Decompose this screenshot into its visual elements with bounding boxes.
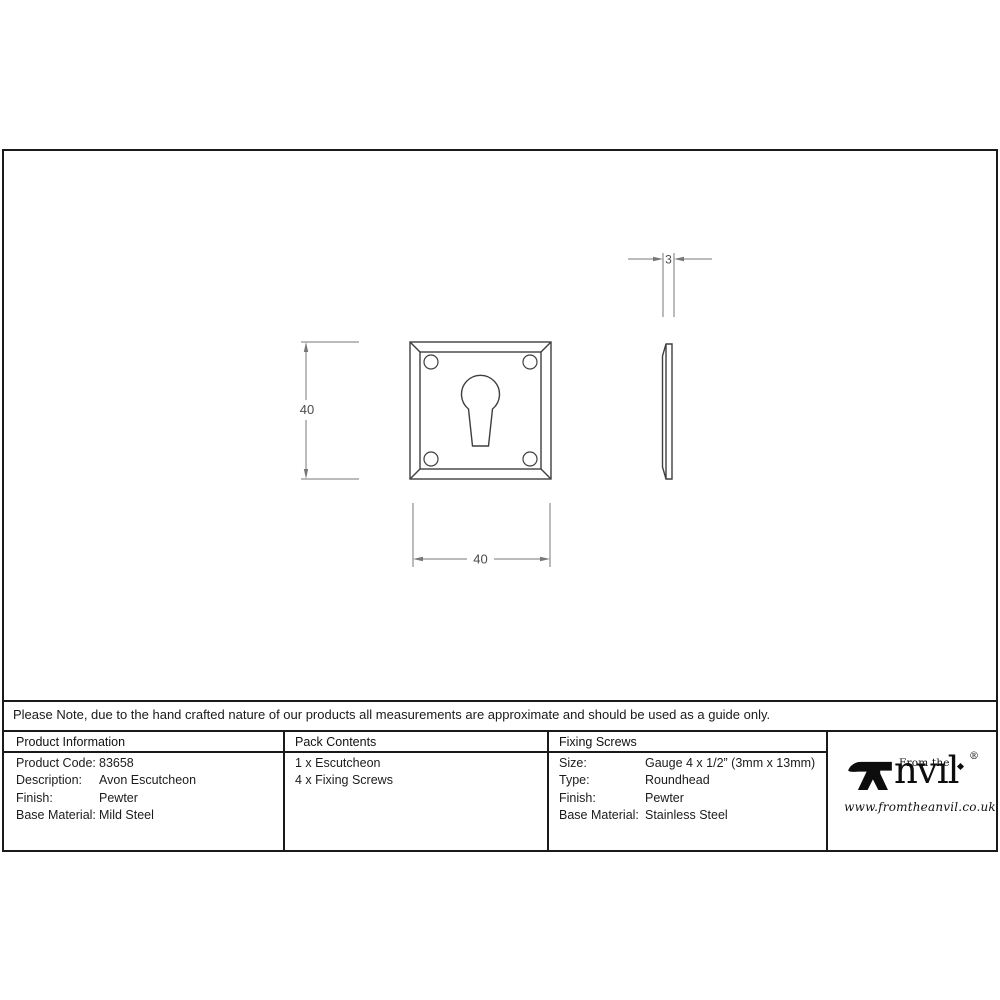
front-outer-edge bbox=[410, 342, 551, 479]
escutcheon-front-view bbox=[410, 342, 551, 479]
column-header-pack-contents: Pack Contents bbox=[295, 735, 376, 749]
arrowhead-up bbox=[304, 342, 308, 352]
screw-hole bbox=[523, 355, 537, 369]
bevel-corner-line bbox=[410, 469, 420, 479]
row-label: Product Code: bbox=[16, 755, 96, 772]
bevel-corner-line bbox=[541, 342, 551, 352]
screw-hole bbox=[424, 355, 438, 369]
from-the-anvil-logo: From the nvıl ® www.fromtheanvil.co.uk bbox=[842, 749, 1000, 819]
drawing-frame: 40 40 3 Please N bbox=[2, 149, 998, 852]
table-row: Size: Gauge 4 x 1/2” (3mm x 13mm) bbox=[559, 755, 639, 772]
row-label: Base Material: bbox=[559, 807, 639, 824]
row-value: 83658 bbox=[99, 755, 134, 772]
front-bevel-edge bbox=[420, 352, 541, 469]
arrowhead-down bbox=[304, 469, 308, 479]
table-row: Base Material: Mild Steel bbox=[16, 807, 96, 824]
row-value: Gauge 4 x 1/2” (3mm x 13mm) bbox=[645, 755, 815, 772]
row-value: Pewter bbox=[99, 790, 138, 807]
table-column-divider bbox=[283, 730, 285, 850]
table-column-divider bbox=[826, 730, 828, 850]
table-row: Finish: Pewter bbox=[559, 790, 639, 807]
row-value: Roundhead bbox=[645, 772, 710, 789]
screw-hole bbox=[424, 452, 438, 466]
brand-wordmark: nvıl bbox=[894, 752, 958, 789]
table-row: Finish: Pewter bbox=[16, 790, 96, 807]
table-row: Description: Avon Escutcheon bbox=[16, 772, 96, 789]
bevel-corner-line bbox=[410, 342, 420, 352]
column-header-fixing-screws: Fixing Screws bbox=[559, 735, 637, 749]
width-dimension-label: 40 bbox=[473, 552, 487, 567]
height-dimension-label: 40 bbox=[300, 402, 314, 417]
row-label: Size: bbox=[559, 755, 587, 772]
brand-website-url: www.fromtheanvil.co.uk bbox=[836, 800, 1000, 814]
arrowhead-right bbox=[540, 557, 550, 561]
table-row: 4 x Fixing Screws bbox=[295, 772, 393, 789]
arrowhead-left bbox=[674, 257, 684, 261]
row-value: Avon Escutcheon bbox=[99, 772, 196, 789]
spec-sheet-page: 40 40 3 Please N bbox=[0, 0, 1000, 1000]
row-value: 1 x Escutcheon bbox=[295, 755, 380, 772]
table-top-border bbox=[4, 730, 996, 732]
arrowhead-left bbox=[413, 557, 423, 561]
table-column-divider bbox=[547, 730, 549, 850]
row-label: Description: bbox=[16, 772, 82, 789]
table-row: 1 x Escutcheon bbox=[295, 755, 393, 772]
bevel-corner-line bbox=[541, 469, 551, 479]
escutcheon-side-view bbox=[663, 344, 673, 479]
row-value: Mild Steel bbox=[99, 807, 154, 824]
note-row-top-border bbox=[4, 700, 996, 702]
pack-contents-rows: 1 x Escutcheon 4 x Fixing Screws bbox=[295, 755, 393, 790]
row-label: Finish: bbox=[559, 790, 596, 807]
technical-drawing: 40 40 3 bbox=[4, 151, 996, 700]
row-label: Finish: bbox=[16, 790, 53, 807]
registered-trademark-symbol: ® bbox=[969, 751, 979, 762]
keyhole-outline bbox=[462, 375, 500, 446]
anvil-icon bbox=[848, 759, 893, 792]
row-value: Pewter bbox=[645, 790, 684, 807]
measurements-note: Please Note, due to the hand crafted nat… bbox=[13, 707, 770, 722]
table-row: Base Material: Stainless Steel bbox=[559, 807, 639, 824]
fixing-screws-rows: Size: Gauge 4 x 1/2” (3mm x 13mm) Type: … bbox=[559, 755, 639, 825]
side-profile-outline bbox=[663, 344, 673, 479]
row-value: Stainless Steel bbox=[645, 807, 728, 824]
thickness-dimension-label: 3 bbox=[665, 253, 672, 267]
row-label: Type: bbox=[559, 772, 590, 789]
screw-hole bbox=[523, 452, 537, 466]
table-row: Type: Roundhead bbox=[559, 772, 639, 789]
product-information-rows: Product Code: 83658 Description: Avon Es… bbox=[16, 755, 96, 825]
row-value: 4 x Fixing Screws bbox=[295, 772, 393, 789]
column-header-product-information: Product Information bbox=[16, 735, 125, 749]
table-row: Product Code: 83658 bbox=[16, 755, 96, 772]
arrowhead-right bbox=[653, 257, 663, 261]
row-label: Base Material: bbox=[16, 807, 96, 824]
table-header-underline bbox=[4, 751, 826, 753]
